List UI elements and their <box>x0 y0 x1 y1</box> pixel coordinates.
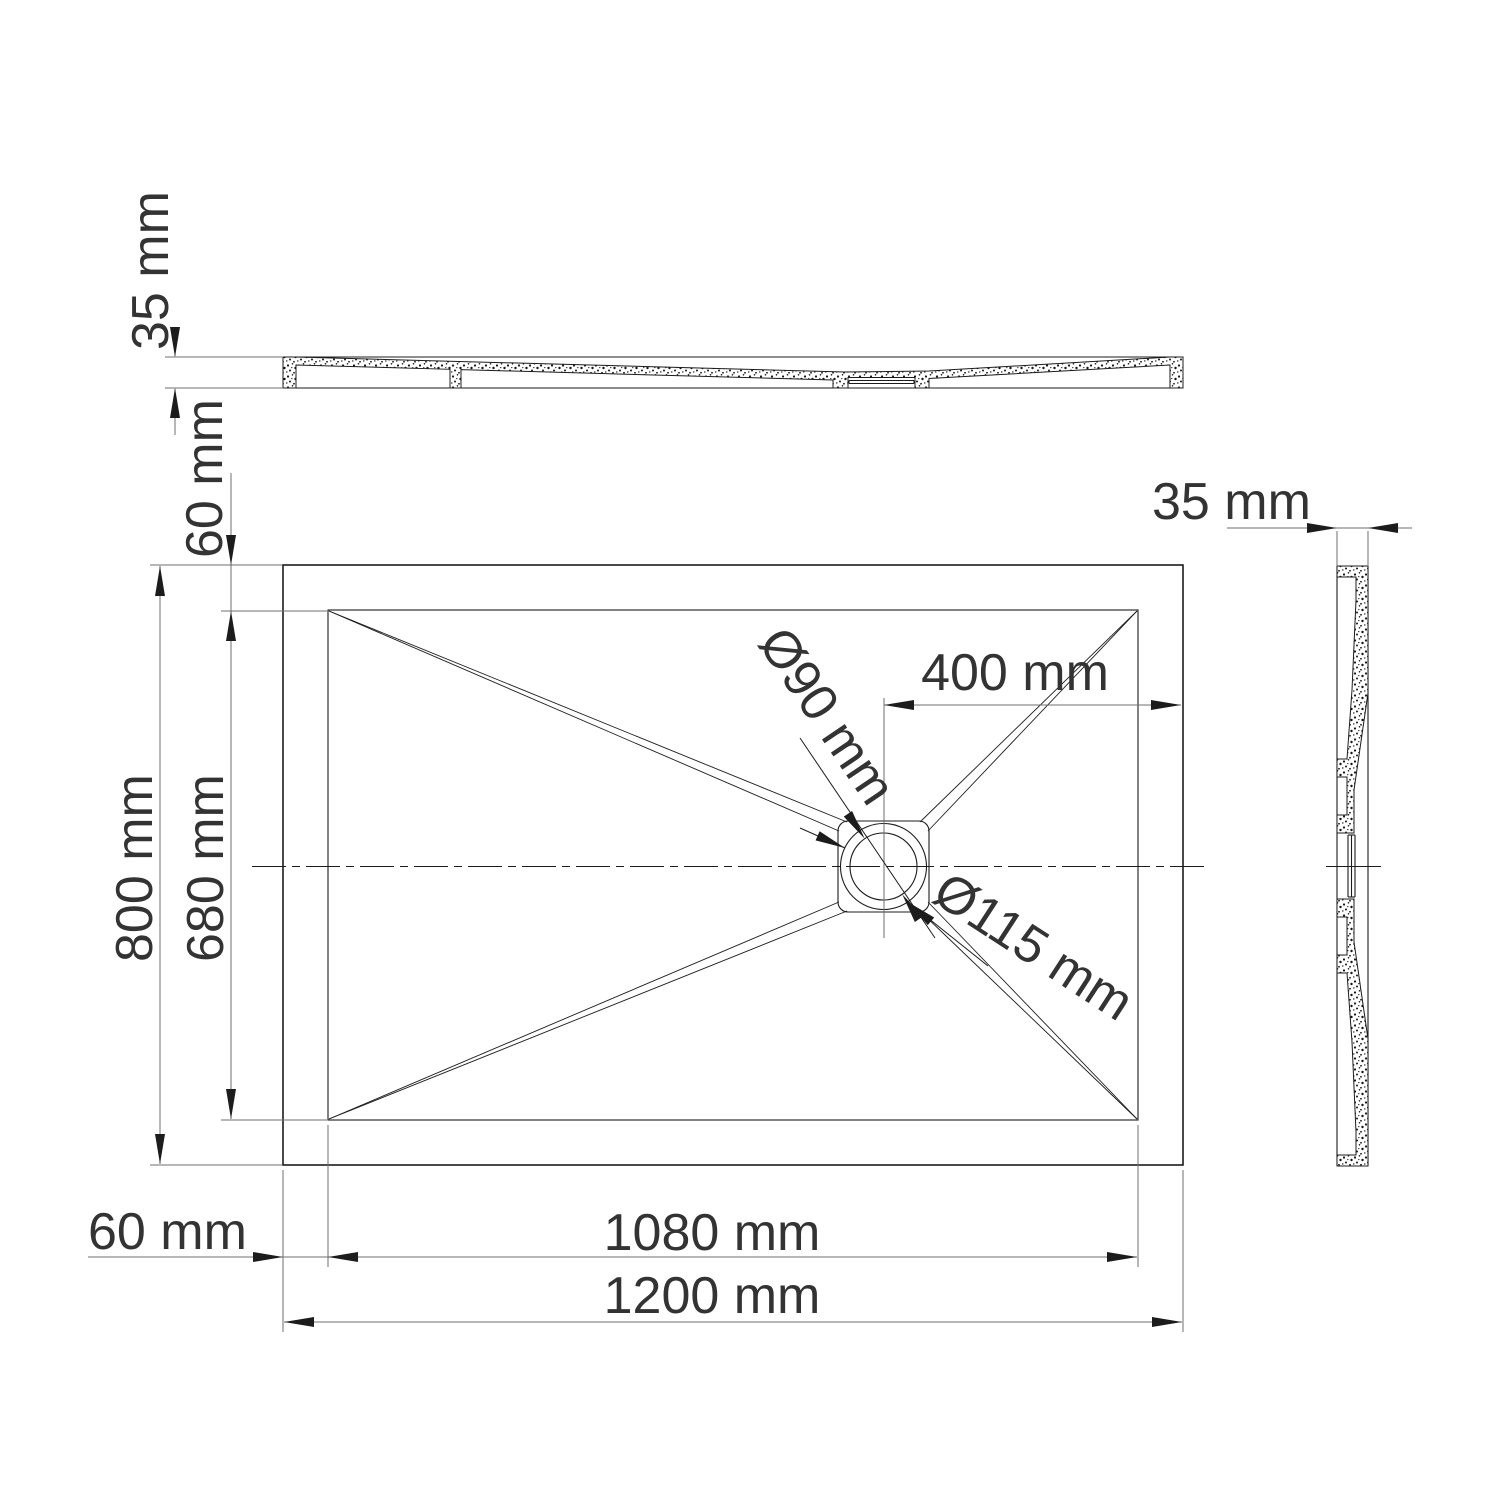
dim-drain-offset-label: 400 mm <box>921 644 1109 702</box>
shower-tray-drawing: 35 mm 60 mm 800 mm 680 mm 60 mm 1080 mm … <box>0 0 1500 1500</box>
dim-top-rim-width-label: 60 mm <box>176 399 234 558</box>
dim-top-profile-thickness-label: 35 mm <box>122 191 180 350</box>
dim-overall-length-label: 1200 mm <box>604 1267 821 1325</box>
dim-left-rim-width-label: 60 mm <box>88 1203 247 1261</box>
technical-drawing-canvas: 35 mm 60 mm 800 mm 680 mm 60 mm 1080 mm … <box>0 0 1500 1500</box>
dim-basin-length-label: 1080 mm <box>604 1204 821 1262</box>
dim-side-profile-thickness-label: 35 mm <box>1152 473 1311 531</box>
dim-overall-width-label: 800 mm <box>106 774 164 962</box>
dim-basin-width-label: 680 mm <box>177 774 235 962</box>
